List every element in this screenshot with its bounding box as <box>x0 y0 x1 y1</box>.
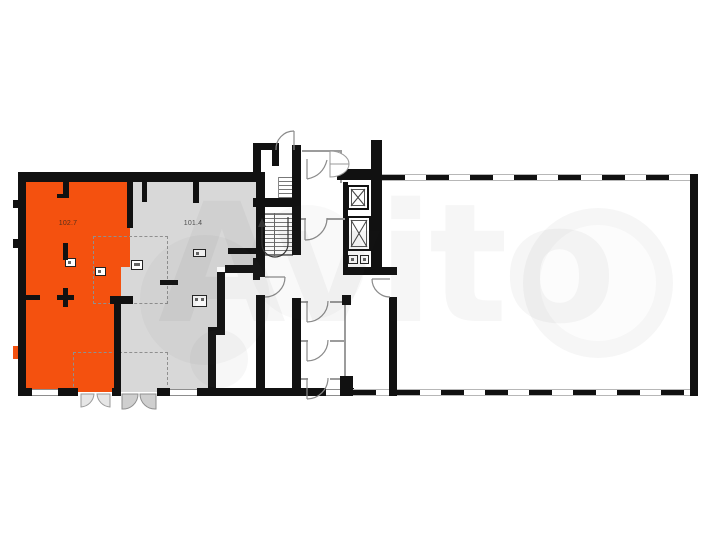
entrance-door-leaf <box>122 394 138 409</box>
door-leaf-scallop <box>330 164 349 177</box>
door-arc <box>307 301 328 322</box>
door-arc <box>276 131 294 150</box>
stair-arrow <box>262 217 288 257</box>
entrance-door-leaf <box>140 394 156 409</box>
door-arc <box>307 378 328 399</box>
entrance-door-leaf <box>97 394 110 407</box>
door-arc <box>307 340 328 361</box>
door-arc <box>305 218 327 240</box>
plan-graphics <box>0 0 720 540</box>
floor-plan: 102.7 101.4 Avito <box>0 0 720 540</box>
stair-arrow-head <box>258 218 266 227</box>
door-arc <box>307 160 327 179</box>
entrance-door-leaf <box>81 394 94 407</box>
door-arc <box>265 277 285 297</box>
door-leaf-scallop <box>330 151 349 164</box>
door-arc <box>372 279 390 297</box>
